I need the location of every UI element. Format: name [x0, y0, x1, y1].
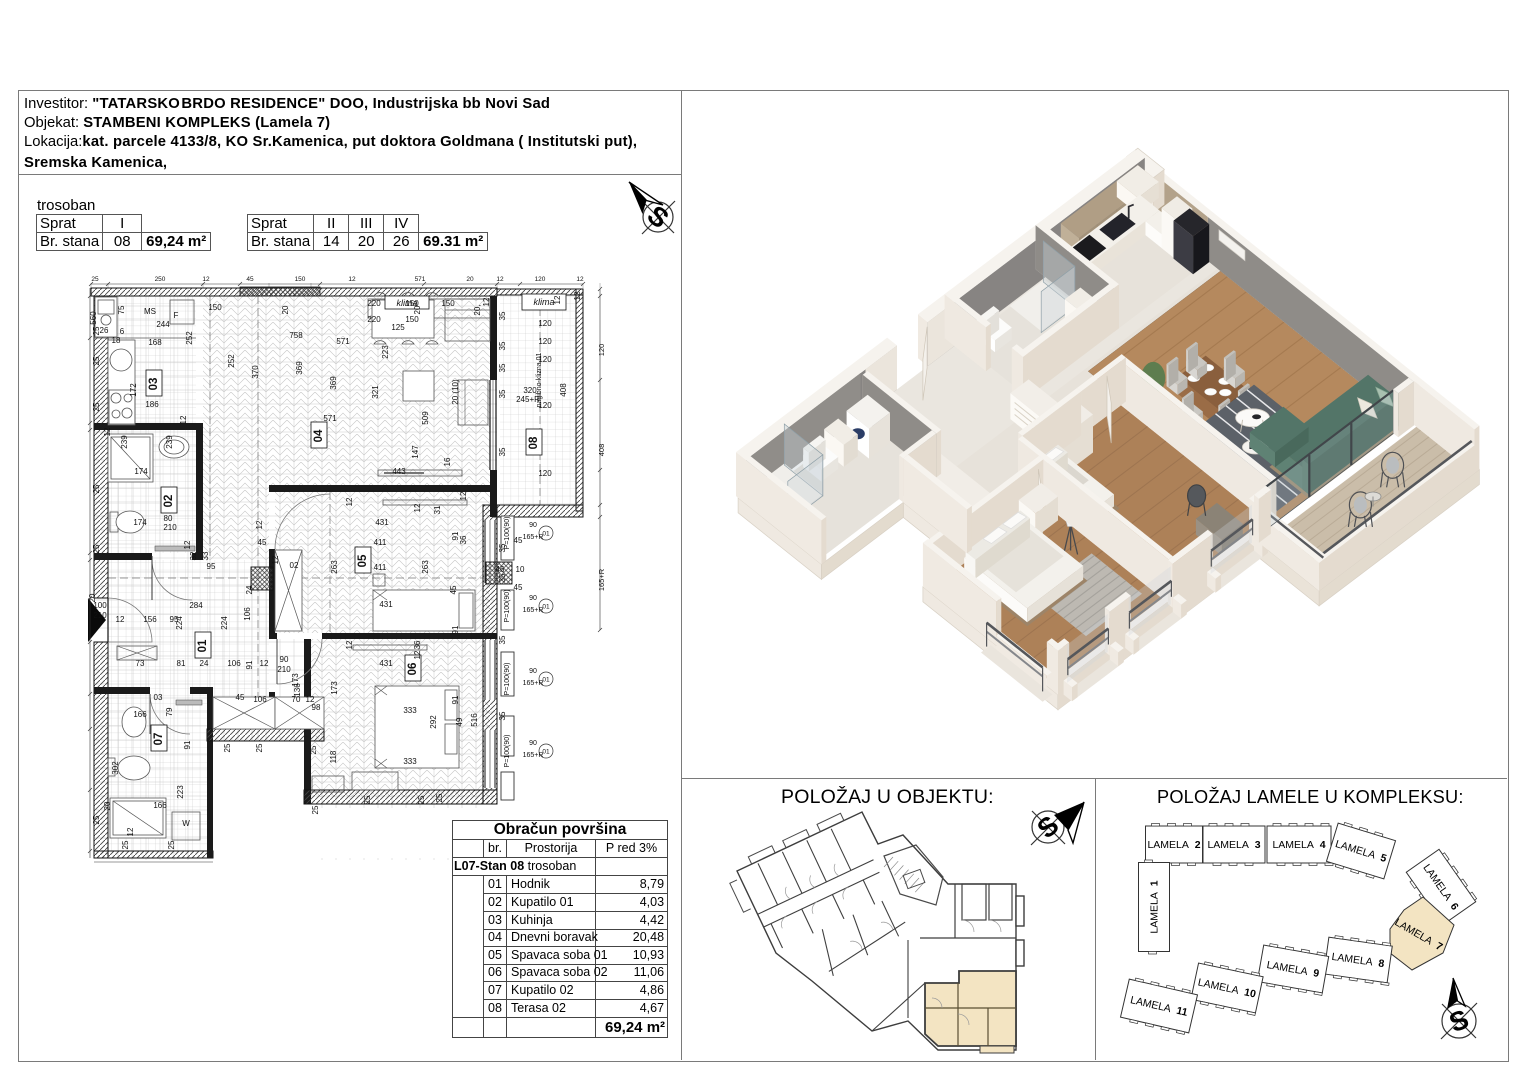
svg-text:12: 12	[348, 276, 356, 283]
svg-text:431: 431	[375, 518, 389, 527]
svg-text:95: 95	[170, 615, 179, 624]
svg-text:90: 90	[529, 595, 537, 602]
svg-text:01: 01	[542, 531, 550, 538]
svg-text:431: 431	[379, 659, 393, 668]
svg-text:106: 106	[243, 607, 252, 621]
svg-text:LAMELA 4: LAMELA 4	[1272, 839, 1325, 851]
svg-text:03: 03	[148, 378, 160, 391]
svg-text:369: 369	[329, 376, 338, 390]
svg-text:6: 6	[120, 327, 125, 336]
svg-text:P=100(90): P=100(90)	[504, 517, 511, 550]
svg-text:01: 01	[542, 677, 550, 684]
svg-text:150: 150	[295, 276, 306, 283]
svg-text:12: 12	[103, 427, 112, 436]
svg-text:03: 03	[154, 693, 163, 702]
svg-text:125: 125	[391, 323, 405, 332]
svg-text:120: 120	[535, 276, 546, 283]
svg-text:516: 516	[470, 713, 479, 727]
svg-text:106: 106	[227, 659, 241, 668]
svg-text:12: 12	[306, 695, 315, 704]
svg-text:12: 12	[271, 555, 280, 564]
svg-text:292: 292	[429, 715, 438, 729]
svg-text:223: 223	[176, 785, 185, 799]
svg-text:25: 25	[92, 356, 101, 365]
svg-text:12: 12	[260, 659, 269, 668]
svg-text:239: 239	[165, 435, 174, 449]
svg-text:35: 35	[498, 447, 507, 456]
svg-text:25: 25	[92, 815, 101, 824]
svg-text:443: 443	[392, 467, 406, 476]
svg-text:20: 20	[88, 593, 97, 602]
svg-text:91: 91	[183, 740, 192, 749]
svg-text:MS: MS	[144, 307, 156, 316]
svg-text:45: 45	[449, 585, 458, 594]
svg-text:12: 12	[126, 827, 135, 836]
svg-text:75: 75	[117, 305, 126, 314]
svg-text:91: 91	[245, 660, 254, 669]
svg-text:509: 509	[421, 411, 430, 425]
svg-text:80: 80	[164, 514, 173, 523]
svg-text:25: 25	[167, 840, 176, 849]
svg-text:25: 25	[121, 840, 130, 849]
svg-text:45: 45	[514, 536, 523, 545]
svg-text:369: 369	[295, 361, 304, 375]
svg-text:32: 32	[189, 551, 198, 560]
svg-text:758: 758	[289, 331, 303, 340]
svg-text:411: 411	[374, 563, 387, 572]
svg-text:174: 174	[134, 467, 148, 476]
svg-text:25: 25	[417, 795, 426, 804]
svg-text:36: 36	[459, 535, 468, 544]
svg-text:333: 333	[403, 757, 417, 766]
svg-text:25: 25	[91, 276, 99, 283]
svg-text:186: 186	[145, 400, 159, 409]
svg-text:239: 239	[120, 435, 129, 449]
svg-text:35: 35	[498, 635, 507, 644]
svg-text:31: 31	[433, 505, 442, 514]
svg-text:168: 168	[148, 338, 162, 347]
svg-text:12: 12	[576, 276, 584, 283]
svg-text:90: 90	[529, 522, 537, 529]
svg-text:263: 263	[330, 560, 339, 574]
svg-text:95: 95	[207, 562, 216, 571]
svg-text:118: 118	[329, 750, 338, 763]
svg-text:70: 70	[292, 695, 301, 704]
svg-text:P=100(90): P=100(90)	[504, 735, 511, 768]
svg-text:33: 33	[201, 551, 210, 560]
svg-text:408: 408	[597, 444, 606, 457]
svg-text:106: 106	[253, 695, 267, 704]
svg-text:90: 90	[529, 740, 537, 747]
svg-text:LAMELA 2: LAMELA 2	[1147, 839, 1200, 851]
svg-text:411: 411	[374, 538, 387, 547]
svg-text:166: 166	[133, 710, 147, 719]
svg-text:165+R: 165+R	[597, 568, 606, 591]
svg-text:25: 25	[363, 795, 372, 804]
svg-text:73: 73	[136, 659, 145, 668]
svg-text:12: 12	[482, 297, 491, 306]
svg-text:20: 20	[466, 276, 474, 283]
svg-text:12: 12	[496, 276, 504, 283]
svg-text:408: 408	[559, 383, 568, 397]
svg-text:05: 05	[357, 554, 369, 567]
svg-text:49: 49	[455, 717, 464, 726]
svg-text:LAMELA 1: LAMELA 1	[1149, 880, 1161, 933]
svg-text:16: 16	[443, 457, 452, 466]
svg-text:P=100(90): P=100(90)	[504, 590, 511, 623]
svg-text:35: 35	[498, 341, 507, 350]
svg-text:01: 01	[542, 749, 550, 756]
svg-text:45: 45	[236, 693, 245, 702]
svg-text:45: 45	[258, 538, 267, 547]
svg-text:F: F	[174, 311, 179, 320]
svg-text:35: 35	[498, 311, 507, 320]
svg-text:20: 20	[281, 305, 290, 314]
svg-text:25: 25	[309, 745, 318, 754]
svg-text:20: 20	[103, 801, 112, 810]
svg-text:560: 560	[89, 311, 98, 325]
svg-text:P=100(90): P=100(90)	[504, 663, 511, 696]
svg-text:120: 120	[538, 469, 552, 478]
svg-text:165+R: 165+R	[523, 607, 544, 614]
svg-text:90: 90	[280, 655, 289, 664]
svg-text:165+R: 165+R	[523, 534, 544, 541]
svg-text:210: 210	[163, 523, 177, 532]
svg-text:08: 08	[528, 436, 540, 449]
svg-text:12: 12	[345, 497, 354, 506]
svg-text:12: 12	[345, 640, 354, 649]
svg-text:571: 571	[415, 276, 426, 283]
svg-text:166: 166	[153, 801, 167, 810]
svg-text:571: 571	[323, 414, 337, 423]
svg-text:120: 120	[538, 337, 552, 346]
svg-text:25: 25	[223, 743, 232, 752]
svg-text:25: 25	[435, 793, 444, 802]
svg-text:12: 12	[459, 491, 468, 500]
svg-text:01: 01	[542, 604, 550, 611]
svg-text:46: 46	[496, 565, 505, 574]
svg-text:173: 173	[330, 681, 339, 695]
svg-text:244: 244	[156, 320, 170, 329]
svg-text:10: 10	[516, 565, 525, 574]
svg-text:90: 90	[529, 668, 537, 675]
svg-text:370: 370	[251, 365, 260, 379]
svg-text:25: 25	[92, 402, 101, 411]
svg-text:224: 224	[220, 616, 229, 630]
svg-text:W: W	[182, 819, 190, 828]
svg-text:25: 25	[311, 805, 320, 814]
svg-text:81: 81	[177, 659, 186, 668]
svg-text:250: 250	[155, 276, 166, 283]
svg-text:25: 25	[255, 743, 264, 752]
svg-text:07: 07	[153, 733, 165, 746]
svg-text:571: 571	[336, 337, 350, 346]
svg-text:26: 26	[100, 326, 109, 335]
svg-text:431: 431	[379, 600, 393, 609]
svg-text:35: 35	[498, 363, 507, 372]
svg-text:12: 12	[179, 415, 188, 424]
svg-text:45: 45	[246, 276, 254, 283]
svg-text:302: 302	[111, 761, 120, 775]
svg-text:223: 223	[381, 345, 390, 359]
svg-text:333: 333	[403, 706, 417, 715]
svg-text:nagibno-klizna 01: nagibno-klizna 01	[536, 352, 543, 407]
svg-text:01: 01	[197, 639, 209, 652]
svg-text:02: 02	[163, 495, 175, 508]
svg-text:120: 120	[538, 319, 552, 328]
svg-text:12: 12	[116, 615, 125, 624]
svg-text:220: 220	[367, 315, 381, 324]
svg-text:12: 12	[413, 650, 422, 659]
svg-text:263: 263	[421, 560, 430, 574]
svg-text:150: 150	[208, 303, 222, 312]
svg-text:79: 79	[165, 707, 174, 716]
svg-text:25: 25	[92, 544, 101, 553]
svg-text:120: 120	[597, 344, 606, 357]
svg-text:252: 252	[185, 331, 194, 345]
svg-text:165+R: 165+R	[523, 752, 544, 759]
svg-text:210: 210	[277, 665, 291, 674]
svg-text:35: 35	[498, 389, 507, 398]
svg-text:12: 12	[413, 503, 422, 512]
svg-text:284: 284	[189, 601, 203, 610]
svg-text:12: 12	[255, 520, 264, 529]
svg-text:174: 174	[133, 518, 147, 527]
svg-text:12: 12	[202, 276, 210, 283]
svg-text:165+R: 165+R	[523, 680, 544, 687]
svg-text:20 (10): 20 (10)	[451, 379, 460, 405]
svg-text:98: 98	[312, 703, 321, 712]
svg-text:35: 35	[498, 573, 507, 582]
svg-text:klima: klima	[533, 297, 554, 307]
svg-text:172: 172	[129, 383, 138, 397]
svg-text:147: 147	[411, 445, 420, 459]
svg-text:210: 210	[93, 611, 107, 620]
svg-text:220: 220	[367, 299, 381, 308]
svg-text:12: 12	[183, 540, 192, 549]
svg-text:06: 06	[407, 663, 419, 676]
svg-text:173: 173	[291, 673, 300, 687]
svg-text:12: 12	[573, 291, 582, 300]
svg-text:252: 252	[227, 354, 236, 368]
svg-text:91: 91	[451, 695, 460, 704]
svg-text:156: 156	[143, 615, 157, 624]
svg-text:150: 150	[405, 315, 419, 324]
svg-text:18: 18	[112, 336, 121, 345]
svg-text:20,: 20,	[473, 304, 482, 315]
svg-text:45: 45	[514, 583, 523, 592]
svg-text:36: 36	[413, 640, 422, 649]
svg-text:150: 150	[441, 299, 455, 308]
svg-text:35: 35	[498, 711, 507, 720]
svg-text:91: 91	[451, 625, 460, 634]
svg-text:12: 12	[553, 295, 562, 304]
svg-text:25: 25	[92, 484, 101, 493]
svg-text:150: 150	[405, 299, 419, 308]
svg-text:LAMELA 3: LAMELA 3	[1207, 839, 1260, 851]
svg-text:24: 24	[200, 659, 209, 668]
svg-text:24: 24	[245, 585, 254, 594]
svg-text:02: 02	[290, 561, 299, 570]
svg-text:321: 321	[371, 385, 380, 399]
svg-text:04: 04	[313, 429, 325, 442]
